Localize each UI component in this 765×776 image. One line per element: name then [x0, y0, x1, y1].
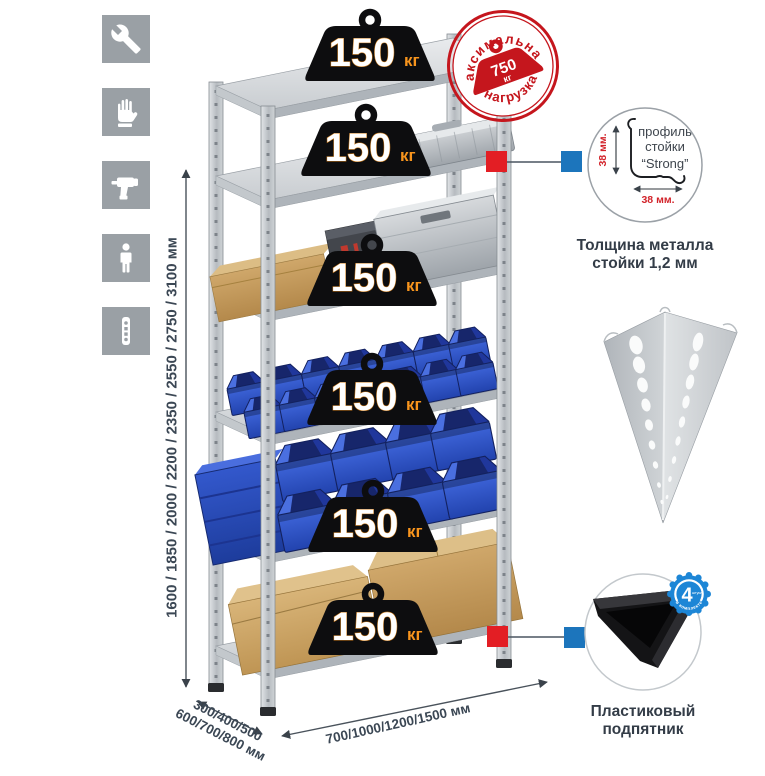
load-value: 150: [325, 126, 392, 170]
strong-post-image: [604, 308, 737, 524]
load-value: 150: [329, 31, 396, 75]
load-value: 150: [332, 502, 399, 546]
foot-caption-2: подпятник: [602, 721, 683, 738]
profile-dim-bottom: 38 мм.: [641, 194, 674, 206]
foot-detail: 4 штуки в комплекте Пластиковый подпятни…: [585, 572, 711, 738]
load-value: 150: [331, 375, 398, 419]
load-value: 150: [332, 605, 399, 649]
width-dimension-line: [282, 682, 547, 736]
load-unit: кг: [406, 395, 422, 414]
badge-small-text: штуки: [692, 591, 702, 595]
profile-label-2: стойки: [645, 139, 685, 154]
shelf-load-badge: 150 кг: [305, 12, 434, 81]
front-right-post: [496, 58, 512, 668]
shelf-load-badge: 150 кг: [301, 107, 430, 176]
profile-caption-1: Толщина металла: [577, 237, 714, 254]
load-unit: кг: [407, 522, 423, 541]
profile-caption-2: стойки 1,2 мм: [592, 255, 697, 272]
profile-label-3: “Strong”: [642, 156, 689, 171]
profile-callout-connector: [486, 151, 582, 172]
red-marker: [487, 626, 508, 647]
profile-label-1: профиль: [638, 124, 692, 139]
back-left-post: [208, 82, 224, 692]
badge-count: 4: [681, 585, 693, 607]
foot-caption-1: Пластиковый: [591, 703, 696, 720]
height-dimension-label: 1600 / 1850 / 2000 / 2200 / 2350 / 2550 …: [164, 158, 181, 698]
load-unit: кг: [404, 51, 420, 70]
load-unit: кг: [400, 146, 416, 165]
profile-detail: 38 мм. 38 мм. профиль стойки “Strong” То…: [577, 108, 714, 272]
profile-dim-side: 38 мм.: [597, 133, 609, 166]
load-unit: кг: [407, 625, 423, 644]
blue-marker: [561, 151, 582, 172]
foot-callout-connector: [487, 626, 585, 648]
blue-marker: [564, 627, 585, 648]
front-left-post: [260, 106, 276, 716]
load-value: 150: [331, 256, 398, 300]
red-marker: [486, 151, 507, 172]
load-unit: кг: [406, 276, 422, 295]
